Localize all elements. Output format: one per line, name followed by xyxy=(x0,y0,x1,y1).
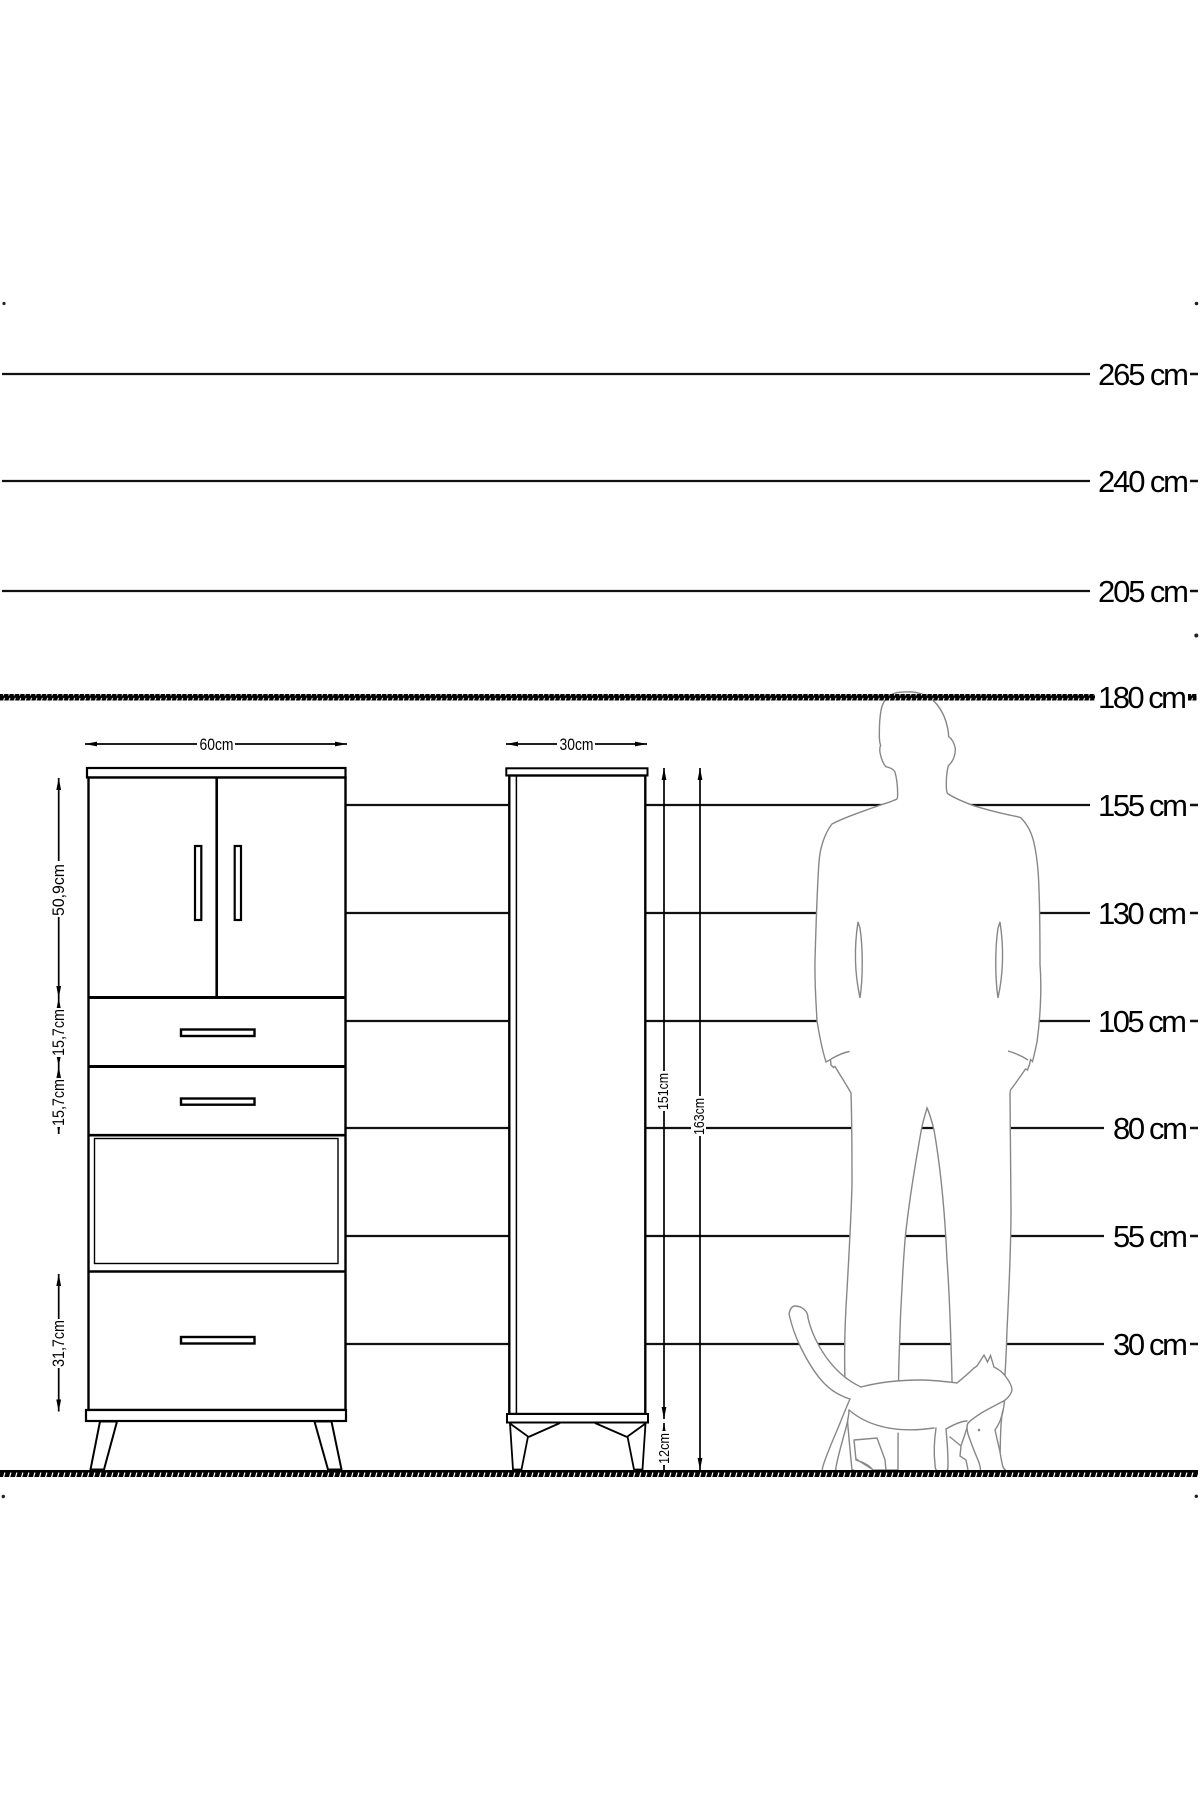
svg-text:163cm: 163cm xyxy=(691,1098,708,1135)
svg-text:30 cm: 30 cm xyxy=(1113,1327,1188,1362)
svg-text:105 cm: 105 cm xyxy=(1098,1004,1187,1039)
svg-text:80 cm: 80 cm xyxy=(1113,1111,1188,1146)
svg-text:15,7cm: 15,7cm xyxy=(49,1079,68,1126)
svg-text:180 cm: 180 cm xyxy=(1098,680,1187,715)
svg-text:50,9cm: 50,9cm xyxy=(49,864,68,916)
svg-text:31,7cm: 31,7cm xyxy=(49,1320,68,1367)
svg-text:155 cm: 155 cm xyxy=(1098,788,1188,823)
svg-text:130 cm: 130 cm xyxy=(1098,896,1187,931)
svg-text:30cm: 30cm xyxy=(560,736,594,754)
svg-text:240 cm: 240 cm xyxy=(1098,464,1189,499)
svg-text:60cm: 60cm xyxy=(200,736,234,754)
svg-text:265 cm: 265 cm xyxy=(1098,357,1189,392)
svg-text:15,7cm: 15,7cm xyxy=(49,1009,68,1056)
svg-text:12cm: 12cm xyxy=(656,1433,673,1464)
svg-text:151cm: 151cm xyxy=(655,1073,672,1110)
svg-text:55 cm: 55 cm xyxy=(1113,1219,1188,1254)
svg-text:205 cm: 205 cm xyxy=(1098,574,1189,609)
